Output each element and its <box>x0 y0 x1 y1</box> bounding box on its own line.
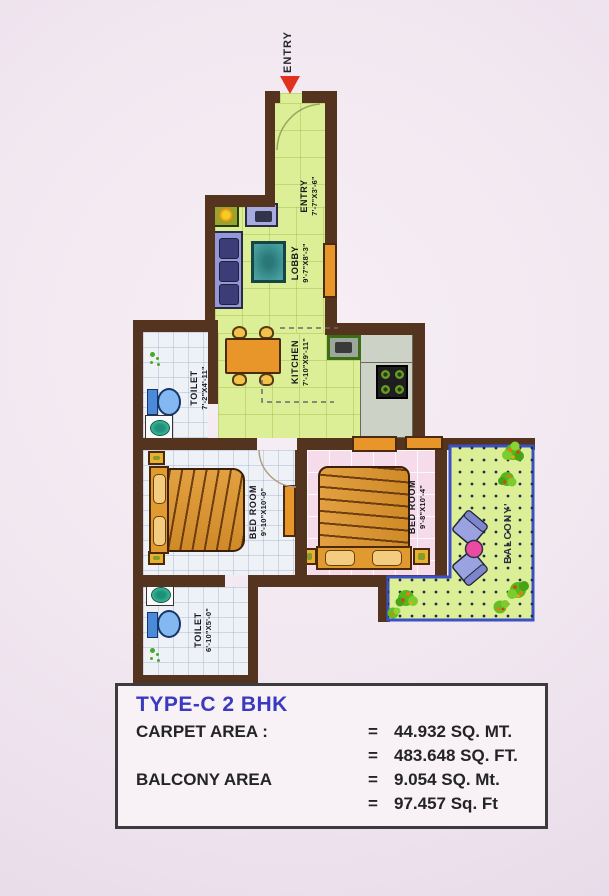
room-name: BED ROOM <box>407 480 418 534</box>
equals-sign: = <box>368 794 378 814</box>
room-label-bedroom1: BED ROOM 9'-10"X10'-0" <box>248 485 268 539</box>
room-label-toilet1: TOILET 7'-2"X4'-11" <box>189 366 209 410</box>
wc-icon <box>157 388 181 416</box>
bed-icon <box>149 466 246 554</box>
wall-segment <box>265 91 275 207</box>
wall-segment <box>205 195 215 332</box>
dining-chair-icon <box>232 373 247 386</box>
nightstand-icon <box>413 548 430 565</box>
balcony-area-sqft: 97.457 Sq. Ft <box>394 794 498 814</box>
plant-icon <box>507 581 529 599</box>
bed-blanket-icon <box>167 468 245 552</box>
sofa-cushion-icon <box>219 284 239 305</box>
end-table-top-icon <box>219 208 233 222</box>
entry-arrow-icon <box>280 76 300 94</box>
wall-segment <box>205 195 275 207</box>
burner-icon <box>381 385 390 394</box>
balcony-door-marker <box>405 436 443 450</box>
room-name: TOILET <box>193 608 204 652</box>
tv-icon <box>255 211 272 222</box>
burner-icon <box>395 370 404 379</box>
room-label-balcony: BALCONY' <box>503 502 515 563</box>
wall-segment <box>295 450 307 577</box>
wall-segment <box>443 438 535 450</box>
wall-segment <box>248 575 445 587</box>
wall-segment <box>378 577 390 622</box>
basin-oval-icon <box>151 587 171 603</box>
sofa-icon <box>213 231 243 309</box>
room-name: ENTRY <box>299 176 310 216</box>
entry-door-gap <box>280 93 302 103</box>
balcony-chair-icon <box>452 550 489 587</box>
kitchen-sink-icon <box>327 335 361 360</box>
room-name: KITCHEN <box>290 338 301 386</box>
room-label-toilet2: TOILET 6'-10"X5'-0" <box>193 608 213 652</box>
pillow-icon <box>325 550 355 566</box>
wall-segment <box>133 320 218 332</box>
wall-segment <box>133 450 143 577</box>
wall-segment <box>413 323 425 448</box>
wall-segment <box>435 450 447 577</box>
room-dims: 6'-10"X5'-0" <box>204 608 213 652</box>
plant-icon <box>498 472 517 487</box>
room-label-kitchen: KITCHEN 7'-10"X9'-11" <box>290 338 310 386</box>
pillow-icon <box>372 550 402 566</box>
wall-segment <box>325 91 337 243</box>
balcony-area-sqmt: 9.054 SQ. Mt. <box>394 770 500 790</box>
room-dims: 7'-2"X4'-11" <box>200 366 209 410</box>
carpet-area-sqmt: 44.932 SQ. MT. <box>394 722 512 742</box>
room-name: BED ROOM <box>248 485 259 539</box>
wall-segment <box>297 438 352 450</box>
plant-icon <box>396 590 419 607</box>
room-dims: 9'-10"X10'-0" <box>259 485 268 539</box>
room-name: LOBBY <box>290 243 301 283</box>
pillow-icon <box>153 516 166 546</box>
coffee-table-icon <box>251 241 286 283</box>
stove-icon <box>376 365 408 399</box>
lobby-window-marker <box>323 243 337 298</box>
wall-segment <box>208 332 218 404</box>
equals-sign: = <box>368 722 378 742</box>
bed-icon <box>316 466 412 570</box>
room-dims: 7'-7"X3'-6" <box>310 176 319 216</box>
burner-icon <box>381 370 390 379</box>
bedroom2-door-marker <box>352 436 397 452</box>
room-dims: 9'-7"X8'-3" <box>301 243 310 283</box>
carpet-area-label: CARPET AREA : <box>136 722 268 742</box>
nightstand-icon <box>148 451 165 465</box>
bedroom1-wardrobe-marker <box>283 485 296 537</box>
wall-segment <box>397 438 405 450</box>
dining-table-icon <box>225 338 281 374</box>
bed-blanket-icon <box>318 466 410 550</box>
room-dims: 9'-8"X10'-4" <box>418 480 427 534</box>
equals-sign: = <box>368 746 378 766</box>
shower-icon <box>150 352 155 357</box>
area-info-box: TYPE-C 2 BHK CARPET AREA : = 44.932 SQ. … <box>115 683 548 829</box>
kitchen-counter <box>360 333 413 363</box>
room-label-lobby: LOBBY 9'-7"X8'-3" <box>290 243 310 283</box>
washbasin-icon <box>145 415 173 439</box>
wall-segment <box>133 575 143 685</box>
balcony-chair-icon <box>452 510 489 547</box>
room-label-bedroom2: BED ROOM 9'-8"X10'-4" <box>407 480 427 534</box>
sink-basin-icon <box>335 342 352 353</box>
sofa-cushion-icon <box>219 261 239 282</box>
balcony-area-label: BALCONY AREA <box>136 770 272 790</box>
shower-icon <box>150 648 155 653</box>
plan-title: TYPE-C 2 BHK <box>136 693 288 717</box>
wall-segment <box>248 587 258 685</box>
pillow-icon <box>153 474 166 504</box>
wall-segment <box>133 320 143 450</box>
wall-segment <box>133 438 257 450</box>
wall-segment <box>133 575 225 587</box>
room-dims: 7'-10"X9'-11" <box>301 338 310 386</box>
burner-icon <box>395 385 404 394</box>
basin-oval-icon <box>150 420 170 436</box>
equals-sign: = <box>368 770 378 790</box>
dining-chair-icon <box>259 373 274 386</box>
room-label-entry: ENTRY 7'-7"X3'-6" <box>299 176 319 216</box>
wc-icon <box>157 610 181 638</box>
entry-direction-label: ENTRY <box>282 31 294 73</box>
plant-icon <box>494 600 510 614</box>
carpet-area-sqft: 483.648 SQ. FT. <box>394 746 518 766</box>
balcony-table-icon <box>466 541 483 558</box>
room-name: BALCONY' <box>503 502 515 563</box>
floorplan-page: ENTRY ENTRY 7'-7"X3'-6" LOBBY 9'-7"X8'-3… <box>0 0 609 896</box>
sofa-cushion-icon <box>219 238 239 259</box>
room-name: TOILET <box>189 366 200 410</box>
wall-segment <box>325 323 425 335</box>
